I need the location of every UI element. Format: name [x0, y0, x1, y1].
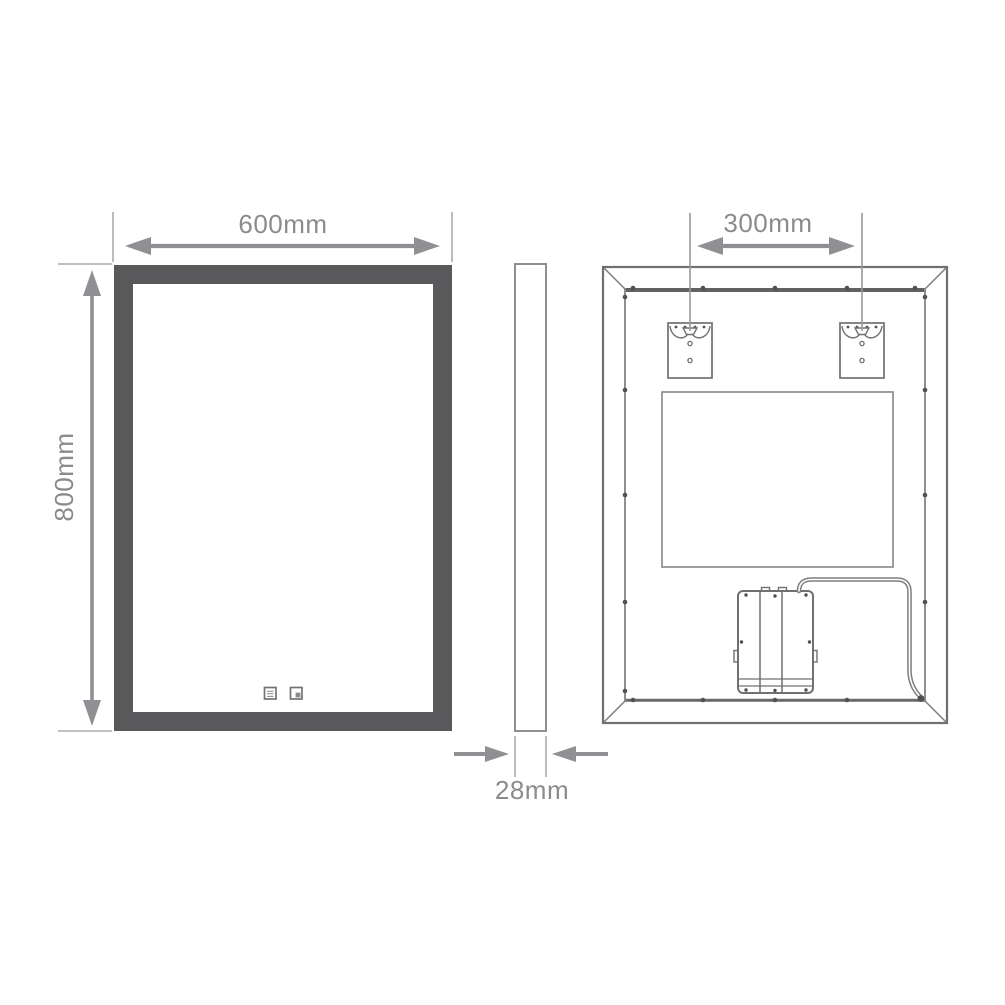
back-view — [603, 267, 947, 723]
drawing-canvas: 600mm 800mm 28mm 300mm — [0, 0, 1005, 1005]
arrowhead-left — [552, 746, 576, 762]
side-profile-view — [515, 264, 546, 731]
arrowhead-left — [697, 237, 723, 255]
cable-exit-point — [918, 695, 925, 702]
arrowhead-up — [83, 270, 101, 296]
driver-box — [734, 588, 817, 694]
front-view — [114, 265, 452, 731]
width-dimension-label: 600mm — [223, 209, 343, 239]
demister-touch-icon — [265, 688, 277, 700]
thickness-dimension-label: 28mm — [472, 775, 592, 805]
arrowhead-down — [83, 700, 101, 726]
keyhole-bracket-left — [668, 323, 712, 378]
arrowhead-right — [485, 746, 509, 762]
mirror-technical-drawing — [0, 0, 1005, 1005]
thickness-dimension — [454, 736, 608, 777]
height-dimension-label: 800mm — [49, 417, 79, 537]
side-profile-outline — [515, 264, 546, 731]
bracket-spacing-dimension-label: 300mm — [708, 208, 828, 238]
arrowhead-right — [829, 237, 855, 255]
keyhole-bracket-right — [840, 323, 884, 378]
arrowhead-left — [125, 237, 151, 255]
arrowhead-right — [414, 237, 440, 255]
mirror-glass — [133, 284, 433, 712]
light-touch-icon — [291, 688, 303, 700]
